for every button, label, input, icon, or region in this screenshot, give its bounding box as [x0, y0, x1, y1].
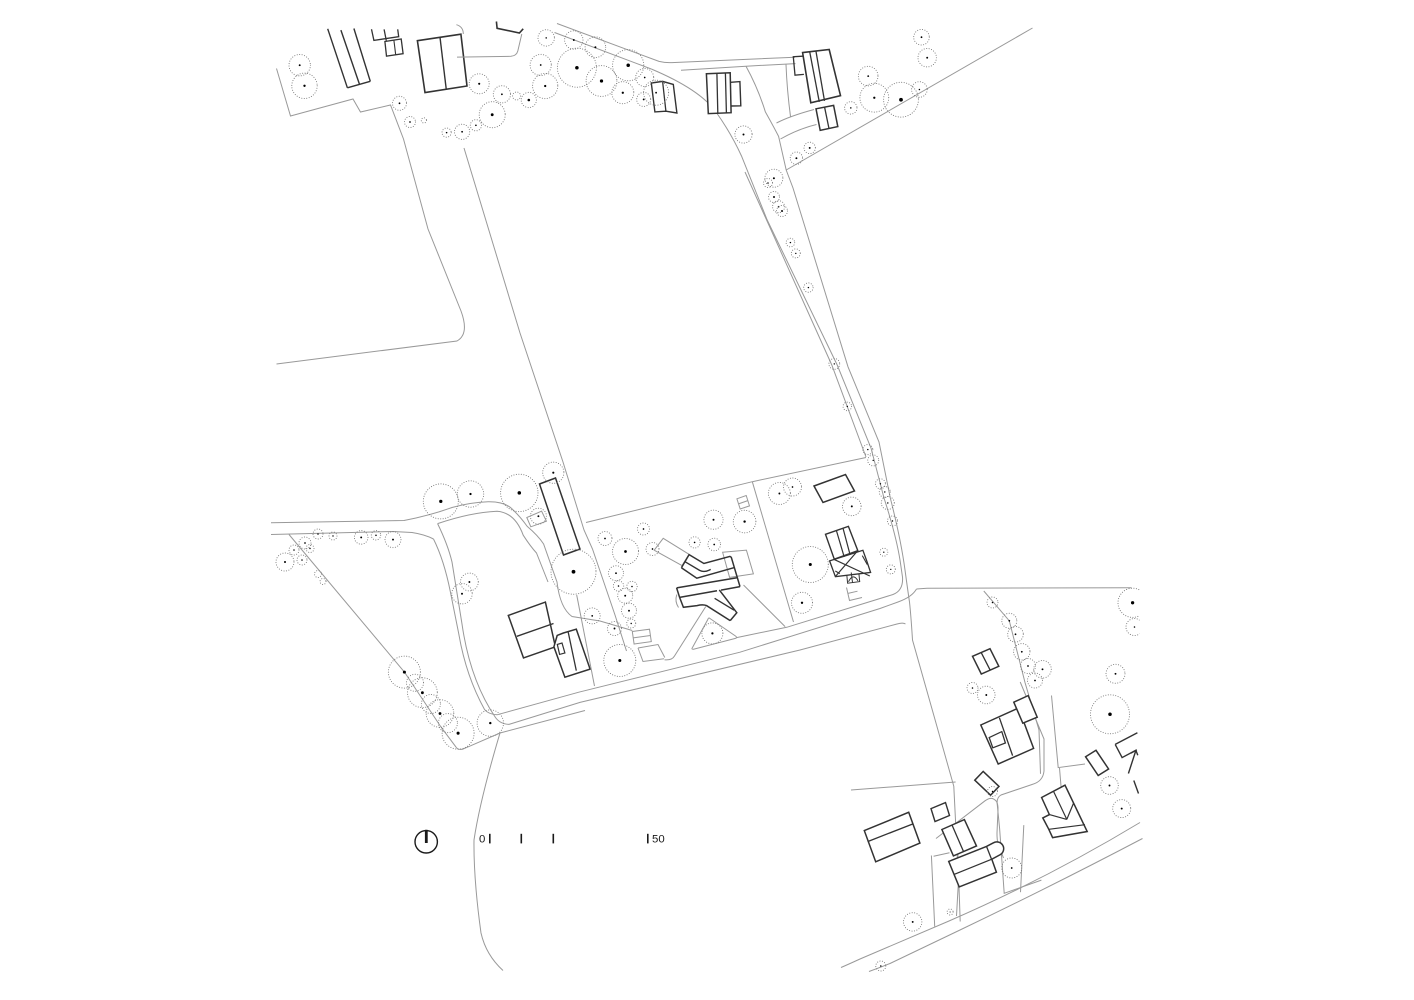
svg-text:0: 0	[479, 833, 485, 845]
svg-text:50: 50	[652, 833, 665, 845]
